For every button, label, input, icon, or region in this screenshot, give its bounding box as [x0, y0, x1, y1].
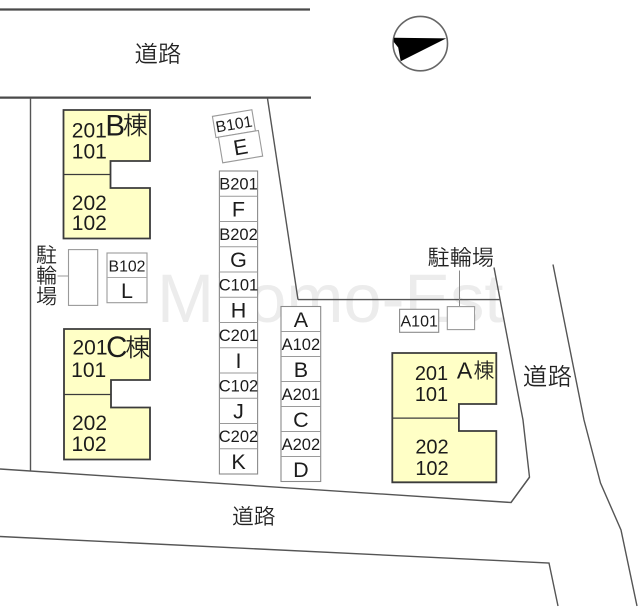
svg-text:A101: A101 [401, 314, 438, 331]
svg-text:A201: A201 [282, 386, 321, 404]
svg-text:B102: B102 [109, 258, 146, 275]
svg-text:C102: C102 [219, 378, 258, 396]
svg-text:B202: B202 [219, 226, 258, 244]
svg-text:A102: A102 [282, 336, 321, 354]
svg-text:B201: B201 [219, 176, 258, 194]
svg-text:101: 101 [71, 359, 106, 382]
svg-text:C101: C101 [219, 277, 258, 295]
svg-text:B: B [294, 358, 308, 382]
svg-text:101: 101 [72, 141, 107, 164]
svg-text:102: 102 [415, 458, 448, 480]
svg-text:G: G [230, 248, 247, 272]
svg-text:L: L [121, 279, 133, 303]
svg-text:C: C [293, 408, 309, 432]
svg-text:A: A [294, 308, 309, 332]
svg-text:201: 201 [72, 120, 107, 143]
svg-text:C202: C202 [219, 428, 258, 446]
svg-text:C201: C201 [219, 327, 258, 345]
svg-text:D: D [293, 458, 309, 482]
svg-text:201: 201 [415, 363, 448, 385]
svg-text:101: 101 [415, 384, 448, 406]
svg-text:K: K [231, 450, 246, 474]
svg-text:A: A [457, 357, 473, 383]
svg-text:A202: A202 [282, 436, 321, 454]
svg-text:102: 102 [72, 212, 107, 235]
svg-text:102: 102 [71, 433, 106, 456]
svg-text:202: 202 [72, 412, 107, 435]
svg-text:201: 201 [72, 337, 107, 360]
svg-text:J: J [233, 400, 244, 424]
svg-text:I: I [236, 349, 242, 373]
svg-text:C: C [106, 331, 127, 364]
svg-text:H: H [231, 299, 247, 323]
svg-text:B: B [105, 110, 125, 143]
svg-text:F: F [232, 198, 245, 222]
svg-text:202: 202 [415, 436, 448, 458]
